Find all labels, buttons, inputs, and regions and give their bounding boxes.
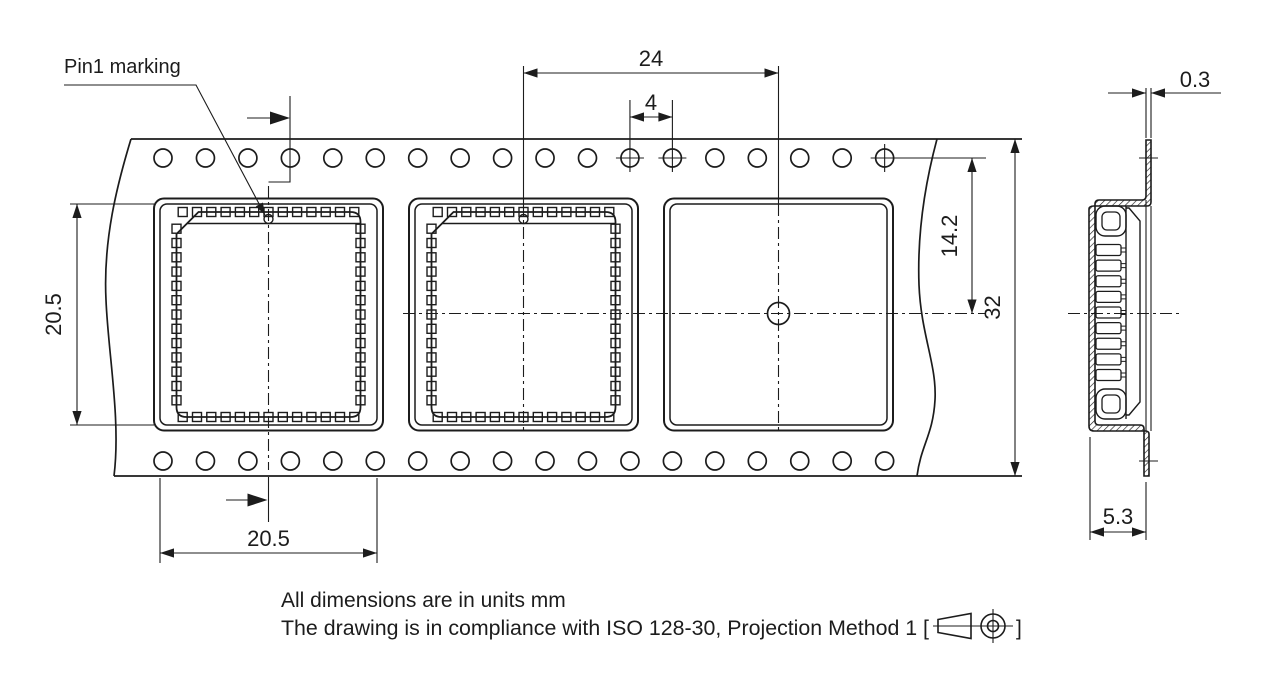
- side-lead-stem: [1121, 295, 1126, 299]
- dimension-hole-to-pocket-center: 14.2: [896, 158, 986, 314]
- dimension-pocket-length: 20.5: [41, 204, 154, 425]
- sprocket-hole: [196, 452, 214, 470]
- symbol-centerlines: [933, 609, 1013, 643]
- side-lead-bar: [1096, 245, 1121, 256]
- dimension-lines: [70, 204, 154, 425]
- dimension-arrowhead: [1010, 462, 1019, 476]
- sprocket-hole: [621, 452, 639, 470]
- side-section-view: 0.3 5.3: [1068, 67, 1221, 540]
- pin1-leader-line: [64, 85, 265, 215]
- dimension-arrowhead: [967, 158, 976, 172]
- side-lead-stem: [1121, 279, 1126, 283]
- dimension-value: 5.3: [1103, 504, 1134, 529]
- chip-lead: [433, 208, 442, 217]
- sprocket-hole: [791, 149, 809, 167]
- sprocket-hole: [324, 149, 342, 167]
- sprocket-hole: [579, 149, 597, 167]
- side-lead-bar: [1096, 307, 1121, 318]
- dimension-tape-thickness: 0.3: [1108, 67, 1221, 138]
- carrier-tape-technical-drawing: Pin1 marking 24 4 20.5 20.5 14.2: [0, 0, 1280, 695]
- dimension-value: 24: [639, 46, 663, 71]
- dimension-arrowhead: [363, 548, 377, 557]
- sprocket-hole: [409, 149, 427, 167]
- dimension-hole-pitch: 4: [630, 90, 672, 117]
- sprocket-hole: [366, 452, 384, 470]
- dimension-arrowhead: [1151, 88, 1165, 97]
- side-j-lead-inner: [1102, 395, 1120, 413]
- side-lead-stem: [1121, 326, 1126, 330]
- dimension-lines: [524, 66, 779, 204]
- pin1-leader: Pin1 marking: [64, 56, 265, 215]
- sprocket-hole: [281, 452, 299, 470]
- projection-method-symbol: [933, 609, 1013, 643]
- sprocket-hole: [366, 149, 384, 167]
- dimension-arrowhead: [1090, 527, 1104, 536]
- sprocket-hole: [579, 452, 597, 470]
- dimension-value: 20.5: [41, 293, 66, 336]
- sprocket-hole: [494, 452, 512, 470]
- sprocket-hole: [536, 149, 554, 167]
- sprocket-hole: [663, 452, 681, 470]
- dimension-value: 14.2: [937, 215, 962, 258]
- sprocket-hole: [239, 149, 257, 167]
- dimension-arrowhead: [658, 112, 672, 121]
- pocket-opening-plane-lines: [1146, 200, 1151, 431]
- sprocket-hole: [494, 149, 512, 167]
- side-lead-stem: [1121, 373, 1126, 377]
- side-lead-bar: [1096, 338, 1121, 349]
- tape-cross-section-profile: [1089, 140, 1151, 476]
- sprocket-hole: [451, 452, 469, 470]
- feed-direction-arrowhead: [270, 112, 290, 125]
- side-lead-bar: [1096, 370, 1121, 381]
- chip-lead: [178, 208, 187, 217]
- dimension-arrowhead: [72, 411, 81, 425]
- side-lead-bar: [1096, 354, 1121, 365]
- side-lead-stem: [1121, 342, 1126, 346]
- drawing-notes: All dimensions are in units mm The drawi…: [281, 589, 1022, 643]
- note-units: All dimensions are in units mm: [281, 589, 566, 612]
- sprocket-hole: [748, 149, 766, 167]
- sprocket-hole: [876, 452, 894, 470]
- dimension-tape-width: 32: [980, 139, 1015, 476]
- drawing-canvas: Pin1 marking 24 4 20.5 20.5 14.2: [0, 0, 1280, 695]
- side-lead-stem: [1121, 248, 1126, 252]
- dimension-value: 32: [980, 295, 1005, 319]
- sprocket-hole: [324, 452, 342, 470]
- side-lead-stem: [1121, 357, 1126, 361]
- sprocket-hole: [748, 452, 766, 470]
- side-lead-bar: [1096, 260, 1121, 271]
- sprocket-hole: [239, 452, 257, 470]
- dimension-value: 20.5: [247, 526, 290, 551]
- sprocket-hole: [706, 452, 724, 470]
- sprocket-hole: [409, 452, 427, 470]
- dimension-pocket-pitch: 24: [524, 46, 779, 204]
- dimension-arrowhead: [524, 68, 538, 77]
- plcc-chips: [172, 208, 620, 422]
- front-view: Pin1 marking 24 4 20.5 20.5 14.2: [41, 46, 1022, 563]
- side-lead-bar: [1096, 323, 1121, 334]
- sprocket-hole: [706, 149, 724, 167]
- hole-crosshair: [616, 100, 644, 172]
- sprocket-hole: [791, 452, 809, 470]
- dimension-value: 4: [645, 90, 657, 115]
- sprocket-hole: [154, 149, 172, 167]
- side-j-lead-inner: [1102, 212, 1120, 230]
- centerlines: [269, 186, 987, 470]
- dimension-arrowhead: [72, 204, 81, 218]
- hole-crosshair: [658, 100, 686, 172]
- note-compliance-close-bracket: ]: [1016, 617, 1022, 640]
- chip-cross-section: [1096, 206, 1140, 419]
- dimension-arrowhead: [967, 300, 976, 314]
- hole-crosshair: [871, 144, 899, 172]
- sprocket-hole: [154, 452, 172, 470]
- dimension-arrowhead: [765, 68, 779, 77]
- sprocket-hole: [196, 149, 214, 167]
- dimension-arrowhead: [1132, 88, 1146, 97]
- side-lead-stem: [1121, 264, 1126, 268]
- sprocket-hole: [833, 452, 851, 470]
- dimension-pocket-depth: 5.3: [1090, 437, 1146, 540]
- tape-break-line-right: [917, 139, 937, 476]
- dimension-arrowhead: [160, 548, 174, 557]
- feed-direction-arrowhead: [248, 494, 268, 507]
- side-j-lead-outer: [1096, 206, 1126, 236]
- side-j-lead-outer: [1096, 389, 1126, 419]
- dimension-arrowhead: [630, 112, 644, 121]
- dimension-value: 0.3: [1180, 67, 1211, 92]
- dimension-arrowhead: [1010, 139, 1019, 153]
- side-lead-bar: [1096, 276, 1121, 287]
- sprocket-hole: [451, 149, 469, 167]
- dimension-arrowhead: [1132, 527, 1146, 536]
- side-chip-body: [1126, 206, 1140, 419]
- sprocket-hole-crosshairs: [616, 100, 899, 172]
- sprocket-hole: [833, 149, 851, 167]
- sprocket-hole: [536, 452, 554, 470]
- pin1-label: Pin1 marking: [64, 56, 181, 78]
- note-compliance: The drawing is in compliance with ISO 12…: [281, 617, 929, 640]
- side-lead-bar: [1096, 291, 1121, 302]
